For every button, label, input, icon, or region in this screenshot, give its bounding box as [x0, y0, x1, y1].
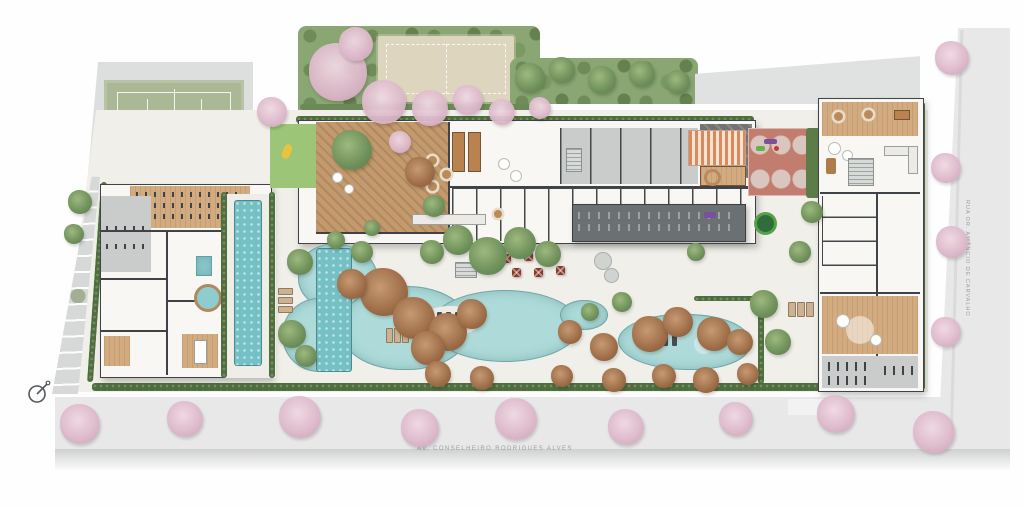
street-blossom-tree: [817, 395, 855, 433]
neighbor-roof: [695, 52, 920, 104]
road-bottom-shadow: [55, 449, 1010, 471]
kitchen-counter: [908, 146, 918, 174]
tree-green: [420, 240, 444, 264]
tree-green: [364, 220, 380, 236]
gym-equipment-row: [106, 244, 146, 249]
play-structure: [764, 139, 777, 144]
blossom-tree: [489, 99, 515, 125]
lounger: [278, 288, 293, 295]
bar-counter: [412, 214, 486, 225]
tree-green: [469, 237, 507, 275]
lounge-sofa: [836, 314, 850, 328]
street-blossom-tree: [60, 404, 100, 444]
dining-table: [894, 110, 910, 120]
tree-russet: [457, 299, 487, 329]
fire-pit-lounge: [604, 268, 619, 283]
hot-tub: [194, 284, 222, 312]
plunge-pool: [196, 256, 212, 276]
terrace-umbrella: [556, 266, 565, 275]
lap-pool: [234, 200, 262, 366]
cafe-table: [442, 170, 451, 179]
tree-russet: [697, 317, 731, 351]
street-blossom-tree: [167, 401, 203, 437]
street-blossom-tree: [913, 411, 955, 453]
room-partitions: [822, 196, 877, 266]
wall: [820, 292, 920, 294]
sauna-benches: [104, 336, 130, 366]
street-blossom-tree: [931, 153, 961, 183]
street-blossom-tree: [608, 409, 644, 445]
tree-russet: [425, 361, 451, 387]
blossom-tree: [389, 131, 411, 153]
wall: [101, 330, 167, 332]
blossom-tree: [412, 90, 448, 126]
wall: [820, 192, 920, 194]
dining-table: [452, 132, 465, 172]
tree-russet: [693, 367, 719, 393]
lounge-sofa: [870, 334, 882, 346]
tree-green: [535, 241, 561, 267]
workshop-tools: [884, 366, 914, 375]
playhouse-slide: [704, 169, 721, 186]
tree-russet: [590, 333, 618, 361]
tree-green: [515, 63, 545, 93]
tree-green: [504, 227, 536, 259]
tree-green: [789, 241, 811, 263]
wall: [166, 230, 168, 375]
tree-green: [629, 61, 655, 87]
tree-green: [750, 290, 778, 318]
tree-green: [549, 57, 575, 83]
blossom-tree: [453, 85, 483, 115]
tree-green: [588, 66, 616, 94]
hedge-mid: [694, 296, 756, 301]
site-plan-canvas: AV. CONSELHEIRO RODRIGUES ALVES RUA DR. …: [0, 0, 1024, 507]
tree-green: [612, 292, 632, 312]
lounge-chair: [498, 158, 510, 170]
north-arrow-icon: [22, 376, 54, 408]
tree-russet: [411, 331, 445, 365]
street-blossom-tree: [401, 409, 439, 447]
terrace-umbrella: [534, 268, 543, 277]
blossom-tree: [257, 97, 287, 127]
stairs: [848, 158, 874, 186]
pool-lap-lane: [316, 248, 352, 372]
tree-green: [327, 231, 345, 249]
street-blossom-tree: [279, 396, 321, 438]
tree-green: [64, 224, 84, 244]
tree-green: [278, 320, 306, 348]
trampoline: [754, 212, 777, 235]
hedge-bottom: [92, 383, 920, 391]
blossom-tree: [339, 27, 373, 61]
street-blossom-tree: [931, 317, 961, 347]
lap-pool-hedge-right: [269, 192, 275, 378]
lounger: [386, 328, 393, 343]
lap-pool-hedge-left: [221, 192, 227, 378]
play-mat: [704, 212, 716, 218]
lounger: [797, 302, 805, 317]
tree-green: [68, 190, 92, 214]
terrace-umbrella: [512, 268, 521, 277]
fitness-equipment-row: [578, 224, 738, 231]
bike-racks: [828, 376, 872, 385]
deck-sofa: [332, 172, 343, 183]
tree-green: [765, 329, 791, 355]
deck-sofa: [344, 184, 354, 194]
tree-russet: [405, 157, 435, 187]
play-structure: [774, 146, 779, 151]
tree-green: [687, 243, 705, 261]
tree-green: [351, 241, 373, 263]
wall: [101, 278, 167, 280]
gym-gray-floor: [101, 196, 151, 272]
tree-green: [287, 249, 313, 275]
massage-bed: [194, 340, 207, 364]
tree-green: [295, 345, 317, 367]
tree-russet: [470, 366, 494, 390]
play-court: [748, 128, 810, 196]
tree-green: [666, 70, 690, 94]
tree-russet: [558, 320, 582, 344]
lounge-chair: [510, 170, 522, 182]
lounger: [278, 297, 293, 304]
tree-russet: [337, 269, 367, 299]
street-label-right: RUA DR. AMÂNCIO DE CARVALHO: [964, 200, 970, 310]
street-blossom-tree: [936, 226, 968, 258]
blossom-tree: [362, 80, 406, 124]
street-blossom-tree: [495, 398, 537, 440]
tree-russet: [652, 364, 676, 388]
lounger: [278, 306, 293, 313]
street-label-bottom: AV. CONSELHEIRO RODRIGUES ALVES: [395, 446, 595, 452]
tree-green: [581, 303, 599, 321]
chaise: [826, 158, 836, 174]
tree-russet: [737, 363, 759, 385]
lounge-sofa: [828, 142, 841, 155]
tree-green: [423, 195, 445, 217]
street-blossom-tree: [719, 402, 753, 436]
bike-racks: [828, 362, 872, 371]
kids-lawn: [270, 124, 316, 188]
cafe-table: [494, 210, 502, 218]
dining-table: [864, 110, 873, 119]
tree-russet: [602, 368, 626, 392]
tree-russet: [727, 329, 753, 355]
tree-green: [801, 201, 823, 223]
street-blossom-tree: [935, 41, 969, 75]
blossom-tree: [529, 97, 551, 119]
playground-mat: [688, 130, 746, 166]
play-structure: [756, 146, 765, 151]
stairs: [566, 148, 582, 172]
tree-russet: [663, 307, 693, 337]
covered-fitness-pavilion: [572, 204, 746, 242]
dining-table: [834, 112, 843, 121]
lounger: [806, 302, 814, 317]
lounger: [788, 302, 796, 317]
tree-russet: [551, 365, 573, 387]
dining-table: [468, 132, 481, 172]
tree-green: [332, 130, 372, 170]
